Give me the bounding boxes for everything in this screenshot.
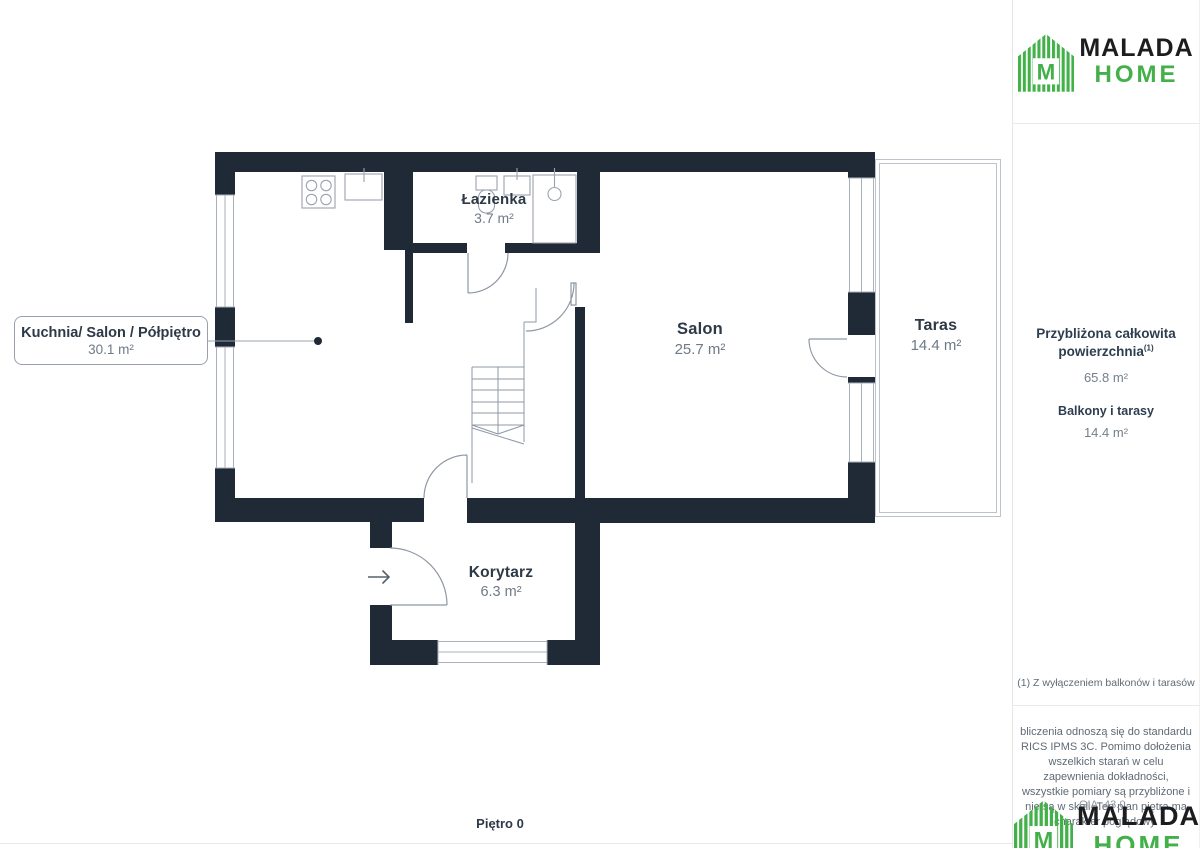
- entrance-arrow-icon: [368, 571, 389, 584]
- total-area-value: 65.8 m²: [1084, 370, 1128, 385]
- room-name: Kuchnia/ Salon / Półpiętro: [21, 325, 201, 341]
- obscured-text: GIA: 43.0: [1079, 799, 1125, 811]
- leader-dot: [314, 337, 322, 345]
- brand-name-secondary: HOME: [1094, 63, 1178, 87]
- brand-wordmark: MALADA HOME: [1079, 36, 1193, 87]
- room-label-kuchnia-salon-polpietro: Kuchnia/ Salon / Półpiętro 30.1 m²: [14, 316, 208, 365]
- summary-title-line2: powierzchnia: [1058, 344, 1144, 359]
- malada-house-icon: M: [1018, 32, 1074, 92]
- footnote: (1) Z wyłączeniem balkonów i tarasów: [1013, 661, 1199, 706]
- brand-name-primary: MALADA: [1079, 36, 1193, 61]
- summary-title-line1: Przybliżona całkowita: [1036, 326, 1176, 341]
- bathroom-sink-icon: [504, 168, 530, 195]
- terrace-outline: [876, 160, 1001, 517]
- floor-plan: [0, 0, 1013, 848]
- staircase: [472, 288, 536, 483]
- bathroom-fixtures: [476, 168, 576, 243]
- shower-icon: [533, 168, 576, 243]
- summary-title: Przybliżona całkowita powierzchnia(1): [1036, 325, 1176, 361]
- brand-logo: M MALADA HOME: [1013, 0, 1199, 124]
- balconies-area-value: 14.4 m²: [1084, 425, 1128, 440]
- svg-text:M: M: [1034, 829, 1054, 848]
- summary-title-footnote-ref: (1): [1144, 344, 1154, 353]
- balconies-label: Balkony i tarasy: [1058, 404, 1154, 418]
- floorplan-page: Kuchnia/ Salon / Półpiętro 30.1 m² Łazie…: [0, 0, 1200, 848]
- kitchen-fixtures: [302, 168, 382, 208]
- stove-icon: [302, 176, 335, 208]
- sidebar: M MALADA HOME Przybliżona całkowita powi…: [1012, 0, 1200, 848]
- area-summary: Przybliżona całkowita powierzchnia(1) 65…: [1013, 124, 1199, 661]
- disclaimer-text: bliczenia odnoszą się do standardu RICS …: [1013, 706, 1199, 830]
- doors: [390, 253, 847, 605]
- toilet-icon: [476, 176, 497, 213]
- walls: [215, 152, 875, 665]
- kitchen-sink-icon: [345, 168, 382, 200]
- svg-text:M: M: [1037, 59, 1056, 84]
- room-area: 30.1 m²: [88, 342, 134, 357]
- floor-label: Piętro 0: [430, 816, 570, 831]
- brand-name-secondary: HOME: [1094, 832, 1184, 848]
